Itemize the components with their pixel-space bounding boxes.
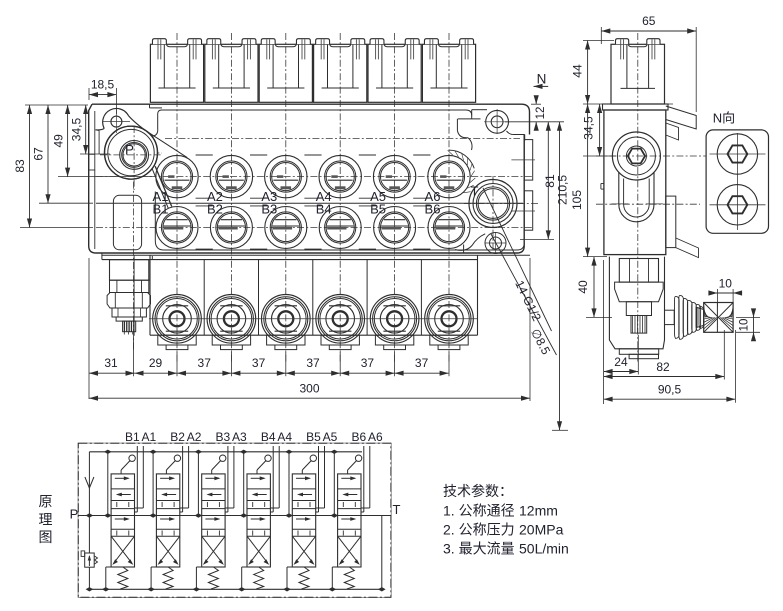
- svg-text:原: 原: [39, 494, 53, 510]
- svg-text:A3: A3: [232, 430, 247, 444]
- svg-text:44: 44: [571, 64, 585, 78]
- svg-text:1. 公称通径: 1. 公称通径: [443, 503, 515, 519]
- svg-text:20MPa: 20MPa: [519, 522, 564, 538]
- svg-text:31: 31: [104, 356, 118, 370]
- svg-text:B5: B5: [370, 202, 386, 217]
- svg-text:N向: N向: [713, 111, 735, 126]
- svg-text:10: 10: [739, 319, 751, 332]
- svg-text:理: 理: [39, 511, 53, 527]
- svg-text:T: T: [471, 184, 479, 199]
- svg-text:B1: B1: [125, 430, 140, 444]
- svg-text:B3: B3: [261, 202, 277, 217]
- svg-text:67: 67: [32, 147, 46, 161]
- svg-text:37: 37: [361, 356, 375, 370]
- svg-text:37: 37: [252, 356, 266, 370]
- svg-text:65: 65: [642, 14, 656, 28]
- svg-text:B4: B4: [261, 430, 276, 444]
- svg-text:T: T: [393, 502, 401, 517]
- svg-text:B2: B2: [170, 430, 185, 444]
- svg-text:18,5: 18,5: [91, 78, 115, 92]
- svg-text:105: 105: [570, 190, 584, 210]
- svg-text:A6: A6: [368, 430, 383, 444]
- svg-text:83: 83: [13, 159, 27, 173]
- svg-text:P: P: [125, 143, 134, 158]
- svg-text:37: 37: [415, 356, 429, 370]
- svg-text:210,5: 210,5: [556, 175, 570, 205]
- svg-text:图: 图: [39, 529, 53, 545]
- svg-text:40: 40: [576, 280, 590, 294]
- svg-text:90,5: 90,5: [658, 382, 682, 396]
- svg-text:P: P: [70, 507, 79, 522]
- svg-text:B3: B3: [216, 430, 231, 444]
- svg-text:B2: B2: [207, 202, 223, 217]
- svg-text:A4: A4: [277, 430, 292, 444]
- svg-text:12mm: 12mm: [519, 503, 558, 519]
- svg-text:B5: B5: [306, 430, 321, 444]
- svg-text:24: 24: [614, 355, 628, 369]
- svg-text:B6: B6: [351, 430, 366, 444]
- svg-text:技术参数：: 技术参数：: [443, 483, 513, 499]
- svg-text:50L/min: 50L/min: [519, 541, 569, 557]
- svg-text:B6: B6: [425, 202, 441, 217]
- svg-text:37: 37: [306, 356, 320, 370]
- svg-text:A2: A2: [187, 430, 202, 444]
- svg-text:12: 12: [535, 107, 547, 120]
- svg-text:49: 49: [51, 134, 65, 148]
- svg-text:2. 公称压力: 2. 公称压力: [443, 522, 515, 538]
- svg-text:82: 82: [656, 360, 670, 374]
- svg-text:37: 37: [198, 356, 212, 370]
- svg-text:34,5: 34,5: [582, 116, 596, 140]
- svg-text:34,5: 34,5: [70, 117, 84, 141]
- svg-text:29: 29: [149, 356, 163, 370]
- svg-text:300: 300: [299, 381, 319, 395]
- svg-text:3. 最大流量: 3. 最大流量: [443, 541, 515, 557]
- svg-text:A1: A1: [141, 430, 156, 444]
- svg-text:B4: B4: [316, 202, 332, 217]
- svg-text:B1: B1: [153, 202, 169, 217]
- svg-text:A5: A5: [323, 430, 338, 444]
- svg-text:10: 10: [719, 277, 733, 291]
